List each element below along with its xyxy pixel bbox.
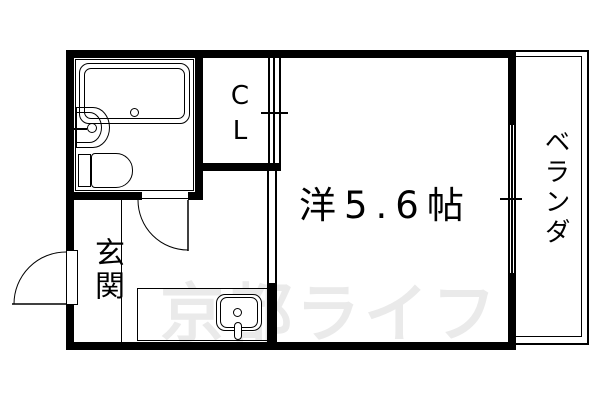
entrance-door-threshold — [67, 251, 78, 305]
floor-plan: 京都ライフ — [0, 0, 600, 400]
balcony-label: ベランダ — [537, 128, 574, 248]
closet-label: CL — [224, 81, 255, 151]
main-room-label: 洋5.6帖 — [299, 175, 472, 229]
entrance-label: 玄関 — [84, 237, 128, 303]
bathroom-door-arc — [138, 200, 188, 250]
entrance-door-arc — [14, 252, 66, 304]
